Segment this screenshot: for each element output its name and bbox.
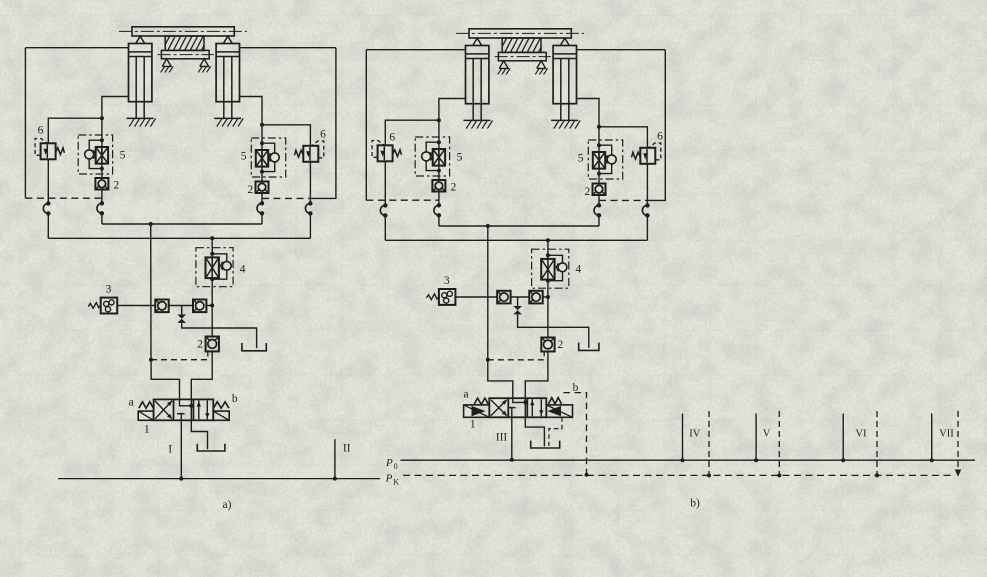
svg-text:6: 6 <box>38 125 44 137</box>
svg-text:3: 3 <box>106 284 112 296</box>
svg-text:5: 5 <box>578 153 584 165</box>
svg-text:P: P <box>385 473 393 485</box>
svg-text:K: K <box>393 477 399 486</box>
svg-text:2: 2 <box>451 182 457 194</box>
svg-text:III: III <box>496 432 508 444</box>
svg-text:5: 5 <box>120 150 126 162</box>
svg-text:6: 6 <box>389 132 395 144</box>
svg-text:5: 5 <box>457 152 463 164</box>
svg-text:V: V <box>763 429 771 440</box>
svg-text:VI: VI <box>855 429 867 440</box>
svg-text:I: I <box>168 443 172 455</box>
svg-text:6: 6 <box>657 131 663 143</box>
svg-text:5: 5 <box>241 151 247 163</box>
svg-text:IV: IV <box>689 429 700 440</box>
svg-text:1: 1 <box>470 419 476 431</box>
svg-text:VII: VII <box>939 429 954 440</box>
svg-text:a: a <box>463 389 468 401</box>
svg-text:2: 2 <box>585 186 591 198</box>
svg-text:b): b) <box>690 498 700 510</box>
svg-text:2: 2 <box>197 339 203 351</box>
svg-text:1: 1 <box>144 423 150 435</box>
svg-text:4: 4 <box>240 264 246 276</box>
svg-text:2: 2 <box>248 184 254 196</box>
svg-text:0: 0 <box>394 462 398 471</box>
svg-text:2: 2 <box>114 180 120 192</box>
svg-text:4: 4 <box>575 264 581 276</box>
svg-text:II: II <box>343 443 351 455</box>
svg-text:3: 3 <box>444 275 450 287</box>
svg-text:a): a) <box>223 499 232 511</box>
svg-text:P: P <box>385 457 393 469</box>
svg-text:6: 6 <box>320 129 326 141</box>
svg-text:2: 2 <box>558 339 564 351</box>
svg-text:a: a <box>129 397 134 409</box>
svg-text:b: b <box>232 393 238 405</box>
